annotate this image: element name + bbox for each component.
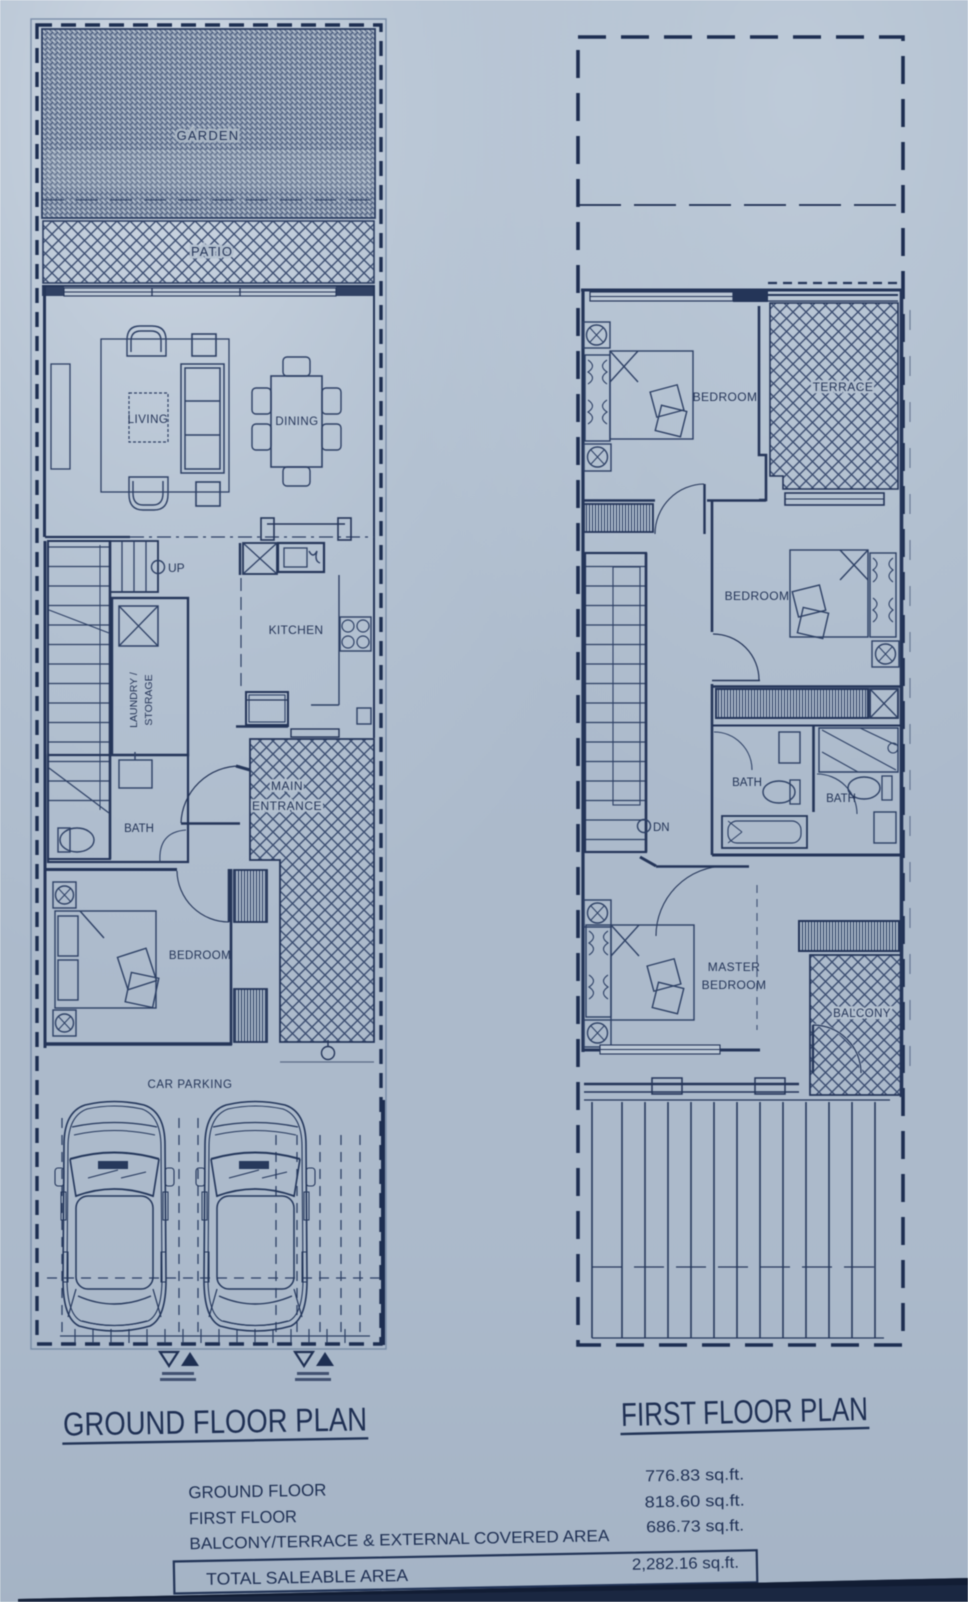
- svg-text:BATH: BATH: [732, 777, 762, 789]
- svg-text:BEDROOM: BEDROOM: [169, 950, 231, 962]
- svg-text:LAUNDRY /: LAUNDRY /: [128, 672, 140, 728]
- svg-text:FIRST FLOOR PLAN: FIRST FLOOR PLAN: [621, 1390, 869, 1433]
- svg-text:UP: UP: [168, 561, 185, 575]
- svg-text:TOTAL SALEABLE AREA: TOTAL SALEABLE AREA: [206, 1566, 409, 1589]
- svg-text:GARDEN: GARDEN: [177, 128, 240, 143]
- svg-text:KITCHEN: KITCHEN: [269, 623, 324, 637]
- svg-text:776.83 sq.ft.: 776.83 sq.ft.: [645, 1467, 744, 1486]
- svg-text:BEDROOM: BEDROOM: [725, 589, 790, 603]
- svg-text:FIRST FLOOR: FIRST FLOOR: [189, 1507, 297, 1528]
- svg-text:BEDROOM: BEDROOM: [702, 978, 767, 992]
- svg-text:BEDROOM: BEDROOM: [693, 390, 758, 404]
- svg-text:686.73 sq.ft.: 686.73 sq.ft.: [646, 1518, 744, 1537]
- svg-text:LIVING: LIVING: [128, 414, 169, 426]
- svg-text:GROUND FLOOR PLAN: GROUND FLOOR PLAN: [63, 1400, 368, 1442]
- svg-text:DN: DN: [653, 822, 670, 834]
- svg-text:CAR PARKING: CAR PARKING: [148, 1079, 233, 1091]
- svg-text:BATH: BATH: [826, 793, 856, 805]
- svg-text:ENTRANCE: ENTRANCE: [252, 799, 322, 813]
- svg-text:MAIN: MAIN: [271, 779, 303, 793]
- svg-text:DINING: DINING: [275, 416, 318, 428]
- svg-text:PATIO: PATIO: [191, 244, 233, 259]
- svg-text:818.60 sq.ft.: 818.60 sq.ft.: [645, 1493, 745, 1512]
- svg-text:BALCONY: BALCONY: [833, 1008, 891, 1020]
- svg-text:MASTER: MASTER: [708, 960, 760, 974]
- svg-text:TERRACE: TERRACE: [813, 380, 874, 394]
- svg-text:STORAGE: STORAGE: [143, 674, 155, 725]
- svg-text:BATH: BATH: [124, 823, 154, 835]
- svg-text:GROUND FLOOR: GROUND FLOOR: [188, 1481, 326, 1503]
- svg-text:2,282.16 sq.ft.: 2,282.16 sq.ft.: [632, 1555, 739, 1574]
